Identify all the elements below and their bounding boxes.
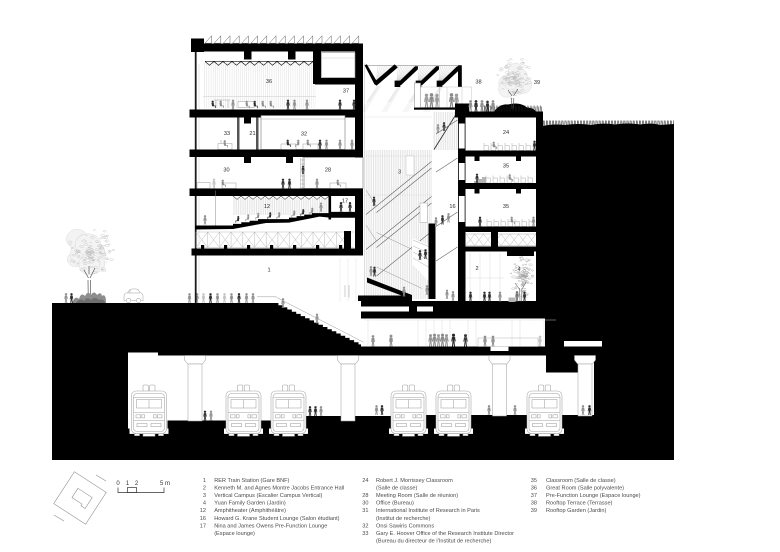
- svg-text:Rooftop Garden (Jardin): Rooftop Garden (Jardin): [546, 508, 606, 514]
- svg-text:21: 21: [249, 131, 255, 137]
- svg-text:31: 31: [362, 508, 368, 514]
- svg-text:International Institute of Res: International Institute of Research in P…: [376, 508, 480, 514]
- svg-text:5 m: 5 m: [160, 481, 170, 487]
- svg-text:37: 37: [531, 493, 537, 499]
- svg-text:35: 35: [531, 478, 537, 484]
- svg-text:2: 2: [203, 485, 206, 491]
- svg-text:30: 30: [362, 501, 368, 507]
- svg-text:(Institut de recherche): (Institut de recherche): [376, 516, 431, 522]
- svg-text:3: 3: [203, 493, 206, 499]
- svg-text:(Bureau du directeur de l’Inst: (Bureau du directeur de l’Institut de re…: [376, 539, 491, 545]
- svg-text:28: 28: [325, 168, 331, 174]
- svg-text:32: 32: [362, 523, 368, 529]
- svg-text:28: 28: [362, 493, 368, 499]
- svg-text:Kenneth M. and Agnes Montre Ja: Kenneth M. and Agnes Montre Jacobs Entra…: [214, 485, 344, 491]
- svg-text:16: 16: [200, 516, 206, 522]
- svg-text:Howard G. Krane Student Lounge: Howard G. Krane Student Lounge (Salon ét…: [214, 516, 339, 522]
- svg-text:Office (Bureau): Office (Bureau): [376, 501, 414, 507]
- svg-text:Yuan Family Garden (Jardin): Yuan Family Garden (Jardin): [214, 501, 286, 507]
- svg-text:33: 33: [362, 531, 368, 537]
- svg-text:Pre-Function Lounge (Espace lo: Pre-Function Lounge (Espace lounge): [546, 493, 641, 499]
- svg-text:36: 36: [531, 485, 537, 491]
- svg-text:Vertical Campus (Escalier Camp: Vertical Campus (Escalier Campus Vertica…: [214, 493, 322, 499]
- svg-text:30: 30: [223, 168, 229, 174]
- svg-text:12: 12: [264, 204, 270, 210]
- svg-text:24: 24: [503, 130, 509, 136]
- svg-text:(Salle de classe): (Salle de classe): [376, 485, 417, 491]
- svg-text:Classroom (Salle de classe): Classroom (Salle de classe): [546, 478, 616, 484]
- svg-text:Onsi Sawiris Commons: Onsi Sawiris Commons: [376, 523, 434, 529]
- svg-text:Robert J. Morrissey Classroom: Robert J. Morrissey Classroom: [376, 478, 453, 484]
- svg-text:Gary E. Hoover Office of the R: Gary E. Hoover Office of the Research In…: [376, 531, 514, 537]
- svg-text:Amphitheater (Amphithéâtre): Amphitheater (Amphithéâtre): [214, 508, 286, 514]
- svg-text:36: 36: [266, 79, 272, 85]
- svg-text:33: 33: [224, 131, 230, 137]
- svg-text:39: 39: [531, 508, 537, 514]
- svg-text:1: 1: [203, 478, 206, 484]
- svg-text:2: 2: [475, 266, 478, 272]
- svg-text:32: 32: [301, 132, 307, 138]
- svg-text:38: 38: [531, 501, 537, 507]
- svg-text:Nina and James Owens Pre-Funct: Nina and James Owens Pre-Function Lounge: [214, 523, 327, 529]
- svg-text:12: 12: [200, 508, 206, 514]
- svg-text:Great Room (Salle polyvalente): Great Room (Salle polyvalente): [546, 485, 624, 491]
- svg-text:3: 3: [398, 170, 401, 176]
- svg-text:RER Train Station (Gare BNF): RER Train Station (Gare BNF): [214, 478, 289, 484]
- svg-text:39: 39: [534, 80, 540, 86]
- svg-text:17: 17: [200, 523, 206, 529]
- svg-text:17: 17: [342, 199, 348, 205]
- svg-text:Rooftop Terrace (Terrasse): Rooftop Terrace (Terrasse): [546, 501, 613, 507]
- svg-text:38: 38: [475, 80, 481, 86]
- svg-text:24: 24: [362, 478, 368, 484]
- svg-text:Meeting Room (Salle de réunion: Meeting Room (Salle de réunion): [376, 493, 458, 499]
- svg-text:16: 16: [449, 204, 455, 210]
- svg-text:4: 4: [203, 501, 206, 507]
- svg-text:35: 35: [503, 204, 509, 210]
- svg-text:(Espace lounge): (Espace lounge): [214, 531, 255, 537]
- svg-text:1: 1: [267, 268, 270, 274]
- svg-text:37: 37: [343, 89, 349, 95]
- svg-text:35: 35: [503, 164, 509, 170]
- svg-text:4: 4: [517, 267, 520, 273]
